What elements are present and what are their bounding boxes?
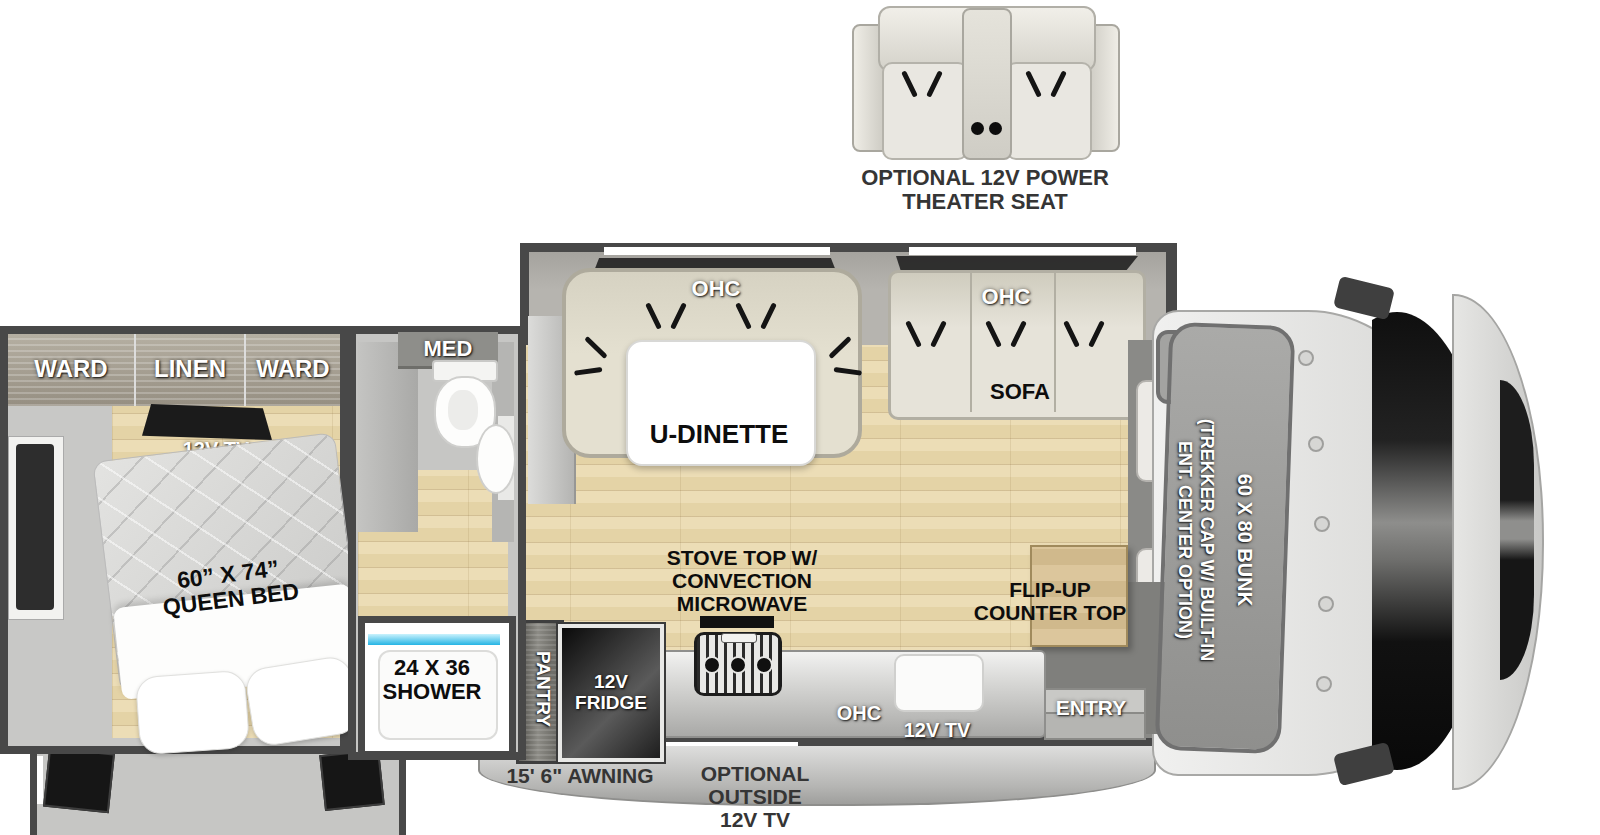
cupholder-icon <box>971 122 984 135</box>
toilet-bowl-inner <box>448 390 478 430</box>
stove-label: STOVE TOP W/ CONVECTION MICROWAVE <box>656 546 828 615</box>
bathroom-wall-panel <box>358 342 418 532</box>
grab-handle-icon <box>1308 436 1324 452</box>
bathroom-sink <box>476 424 516 494</box>
fridge-label: 12V FRIDGE <box>575 672 647 714</box>
kitchen-ohc-label: OHC <box>826 702 892 724</box>
seat-stitch-icon <box>902 318 950 354</box>
sofa-ohc-label: OHC <box>978 285 1034 309</box>
shower-size: 24 X 36 <box>394 655 470 680</box>
bumpout-window <box>43 747 115 814</box>
rv-floorplan: OPTIONAL 12V POWER THEATER SEAT U-DINETT… <box>0 0 1600 835</box>
grab-handle-icon <box>1318 596 1334 612</box>
sofa-label: SOFA <box>970 380 1070 404</box>
fridge-line1: 12V <box>594 671 628 692</box>
stove-line3: MICROWAVE <box>677 592 807 615</box>
burner-icon <box>703 656 721 674</box>
seat-stitch-icon <box>898 68 946 104</box>
burner-icon <box>755 656 773 674</box>
pantry-label: PANTRY <box>525 623 561 755</box>
theater-seat-console <box>962 8 1012 160</box>
fridge: 12V FRIDGE <box>558 624 664 762</box>
outside-tv-label: OPTIONAL OUTSIDE 12V TV <box>655 762 855 831</box>
trekker-cap-label: (TREKKER CAP W/ BUILT-IN ENT. CENTER OPT… <box>1168 340 1224 740</box>
seat-stitch-icon <box>1022 68 1070 104</box>
theater-label-line1: OPTIONAL 12V POWER <box>861 165 1109 190</box>
theater-seat <box>850 6 1120 160</box>
counter-sink <box>894 654 984 712</box>
shower-label: 24 X 36 SHOWER <box>362 656 502 704</box>
trekker-line1: (TREKKER CAP W/ BUILT-IN <box>1196 340 1219 740</box>
theater-label-line2: THEATER SEAT <box>902 189 1067 214</box>
pillow <box>244 654 361 748</box>
seat-stitch-icon <box>732 300 780 336</box>
bedroom-tv-icon <box>142 404 272 440</box>
slideout-window <box>604 247 830 255</box>
side-mirror-icon <box>1333 276 1395 321</box>
ward-left-label: WARD <box>8 356 134 382</box>
outside-tv-line1: OPTIONAL OUTSIDE <box>701 762 810 808</box>
outside-tv-line2: 12V TV <box>720 808 790 831</box>
trekker-line2: ENT. CENTER OPTION) <box>1174 340 1197 740</box>
bunk-label-wrap: 60 X 80 BUNK <box>1222 344 1268 736</box>
queen-bed: 60” X 74” QUEEN BED <box>92 432 369 765</box>
stove-top-icon <box>694 632 782 696</box>
cupholder-icon <box>989 122 1002 135</box>
seat-stitch-icon <box>982 318 1030 354</box>
theater-seat-label: OPTIONAL 12V POWER THEATER SEAT <box>830 166 1140 214</box>
entry-label: ENTRY <box>1038 696 1144 719</box>
burner-icon <box>729 656 747 674</box>
grab-handle-icon <box>1298 350 1314 366</box>
stove-line2: CONVECTION <box>672 569 812 592</box>
bunk-label: 60 X 80 BUNK <box>1222 344 1268 736</box>
slideout-window <box>909 247 1136 255</box>
kitchen-tv-label: 12V TV <box>894 719 980 741</box>
shower-glass <box>368 634 500 645</box>
awning-label: 15' 6" AWNING <box>495 764 665 787</box>
seat-stitch-icon <box>642 300 690 336</box>
u-dinette-label: U-DINETTE <box>628 420 810 449</box>
shower-name: SHOWER <box>383 679 482 704</box>
seat-stitch-icon <box>1060 318 1108 354</box>
ward-right-label: WARD <box>246 356 340 382</box>
rear-window <box>16 444 54 610</box>
grab-handle-icon <box>1316 676 1332 692</box>
fridge-line2: FRIDGE <box>575 692 647 713</box>
range-hood-icon <box>700 616 774 628</box>
grab-handle-icon <box>1314 516 1330 532</box>
pillow <box>135 670 250 755</box>
front-bumper <box>1500 380 1534 680</box>
med-cabinet-label: MED <box>398 337 498 361</box>
bumpout-window-frame <box>37 756 43 804</box>
stove-knob-panel <box>721 633 757 643</box>
linen-label: LINEN <box>136 356 244 382</box>
stove-line1: STOVE TOP W/ <box>667 546 818 569</box>
dinette-ohc-label: OHC <box>688 277 744 301</box>
flip-up-counter-label: FLIP-UP COUNTER TOP <box>960 578 1140 624</box>
trekker-label-wrap: (TREKKER CAP W/ BUILT-IN ENT. CENTER OPT… <box>1168 340 1224 740</box>
flip-up-line2: COUNTER TOP <box>974 601 1126 624</box>
flip-up-line1: FLIP-UP <box>1009 578 1091 601</box>
